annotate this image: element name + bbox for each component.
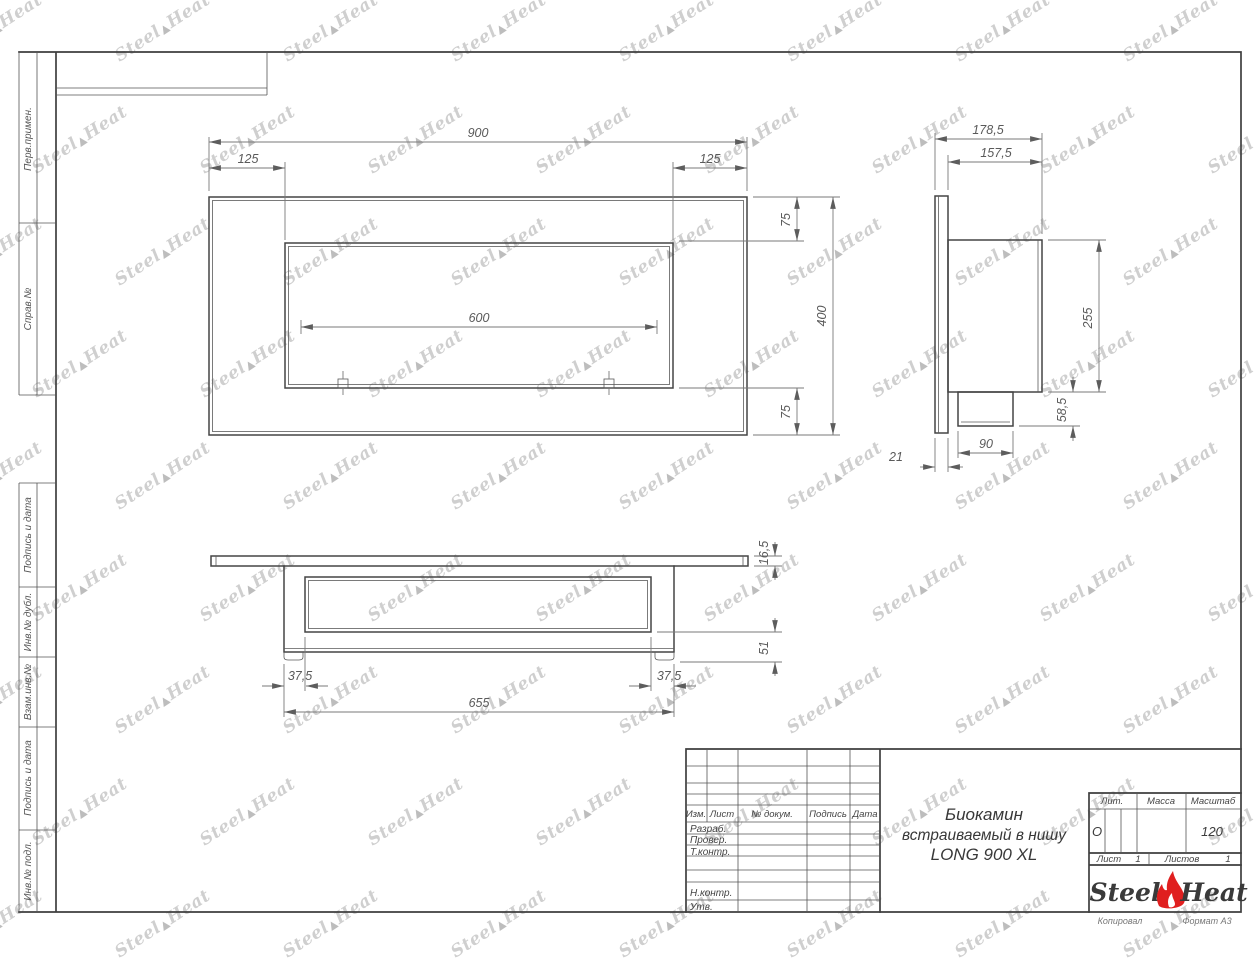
- foot-bracket-left: [284, 652, 303, 660]
- foot-bracket-right: [655, 652, 674, 660]
- title-block: Изм. Лист № докум. Подпись Дата Разраб. …: [686, 749, 1248, 913]
- sheets-label: Листов: [1164, 854, 1200, 865]
- dim-side-tray-height: 58,5: [1055, 398, 1069, 422]
- mass-label: Масса: [1147, 796, 1175, 807]
- top-left-reference-box: [56, 52, 267, 95]
- margin-label-podpis-data-2: Подпись и дата: [23, 740, 34, 816]
- mount-clip-right: [604, 371, 614, 395]
- dim-front-right-inset: 125: [700, 152, 721, 166]
- footer-copy-label: Копировал: [1098, 916, 1143, 926]
- dim-front-overall-width: 900: [468, 126, 489, 140]
- col-doc: № докум.: [751, 809, 793, 820]
- mount-clip-left: [338, 371, 348, 395]
- scale-value: 120: [1201, 824, 1223, 839]
- left-margin-column: Перв.примен. Справ.№ Подпись и дата Инв.…: [19, 52, 56, 912]
- doc-title-line1: Биокамин: [945, 805, 1024, 824]
- col-sign: Подпись: [809, 809, 847, 820]
- doc-title-line3: LONG 900 XL: [931, 845, 1038, 864]
- dim-bottom-left-foot-offset: 37,5: [288, 669, 312, 683]
- row-utv: Утв.: [689, 902, 713, 913]
- dim-bottom-body-width: 655: [469, 696, 490, 710]
- scale-label: Масштаб: [1191, 796, 1236, 807]
- margin-label-podpis-data-1: Подпись и дата: [23, 497, 34, 573]
- dim-side-body-depth: 157,5: [980, 146, 1011, 160]
- sheet-label: Лист: [1096, 854, 1122, 865]
- footer-format-label: Формат А3: [1182, 916, 1231, 926]
- dim-front-overall-height: 400: [815, 306, 829, 327]
- row-tkontr: Т.контр.: [690, 847, 730, 858]
- dim-front-left-inset: 125: [238, 152, 259, 166]
- lit-label: Лит.: [1100, 796, 1123, 807]
- brand-logo-heat: Heat: [1179, 878, 1248, 907]
- margin-label-sprav-no: Справ.№: [23, 287, 34, 330]
- drawing-canvas: Перв.примен. Справ.№ Подпись и дата Инв.…: [0, 0, 1255, 970]
- dim-front-bottom-margin: 75: [779, 405, 793, 419]
- sheet-value: 1: [1135, 854, 1140, 865]
- sheet-footer: Копировал Формат А3: [1098, 916, 1232, 926]
- dim-front-burner-length: 600: [469, 311, 490, 325]
- lit-value: О: [1092, 824, 1102, 839]
- row-razrab: Разраб.: [690, 823, 726, 835]
- row-nkontr: Н.контр.: [690, 888, 732, 899]
- dim-bottom-tray-drop: 51: [757, 641, 771, 655]
- sheet-frame: [19, 52, 1241, 912]
- doc-title-line2: встраиваемый в нишу: [902, 827, 1067, 844]
- drawing-sheet: Steel▲HeatSteel▲HeatSteel▲HeatSteel▲Heat…: [0, 0, 1255, 970]
- dim-side-flange-thickness: 21: [888, 450, 903, 464]
- col-list: Лист: [709, 809, 735, 820]
- margin-label-perv-primen: Перв.примен.: [23, 107, 34, 171]
- margin-label-vzam-inv: Взам.инв.№: [23, 664, 34, 720]
- brand-logo-steel: Steel: [1090, 878, 1161, 907]
- col-izm: Изм.: [686, 809, 706, 820]
- row-prover: Провер.: [690, 835, 727, 846]
- dim-side-body-height: 255: [1081, 308, 1095, 330]
- dim-side-tray-depth: 90: [979, 437, 993, 451]
- dim-bottom-flange-thickness: 16,5: [757, 541, 771, 565]
- margin-label-inv-podl: Инв.№ подл.: [23, 841, 34, 900]
- margin-label-inv-dubl: Инв.№ дубл.: [22, 593, 34, 652]
- dim-bottom-right-foot-offset: 37,5: [657, 669, 681, 683]
- dim-side-overall-depth: 178,5: [972, 123, 1003, 137]
- side-view-dimensions: 178,5 157,5 255 58,5 90 21: [888, 123, 1106, 472]
- side-view: [935, 196, 1042, 433]
- brand-logo: Steel Heat: [1090, 871, 1249, 908]
- dim-front-top-margin: 75: [779, 213, 793, 227]
- sheets-value: 1: [1225, 854, 1230, 865]
- bottom-view: [211, 556, 748, 660]
- col-date: Дата: [851, 809, 877, 820]
